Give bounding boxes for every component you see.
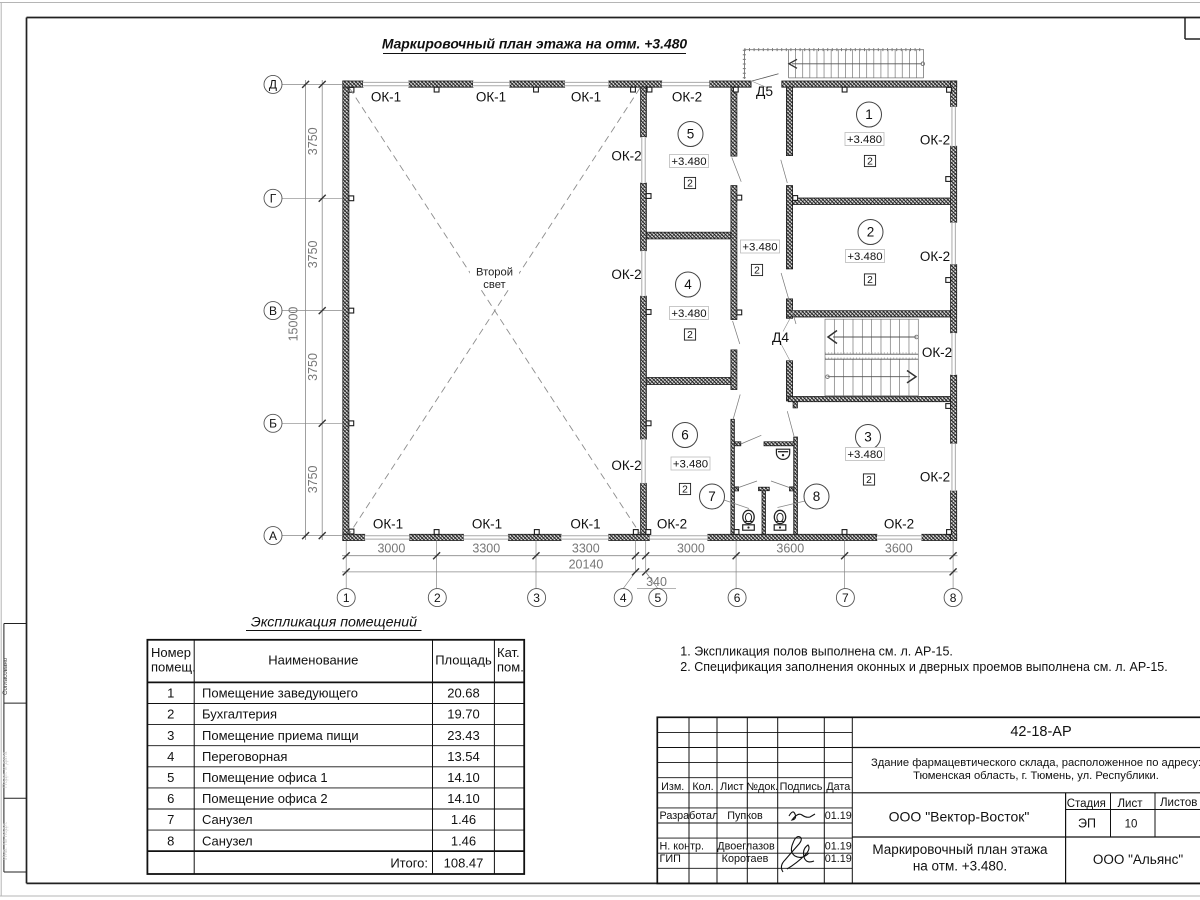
svg-text:Лист: Лист	[1118, 798, 1144, 810]
svg-text:5: 5	[654, 591, 661, 605]
svg-text:1: 1	[865, 107, 873, 122]
svg-text:3600: 3600	[885, 541, 913, 555]
svg-text:3: 3	[533, 591, 540, 605]
svg-text:20.68: 20.68	[447, 686, 480, 701]
svg-text:Г: Г	[270, 192, 277, 206]
svg-text:3750: 3750	[306, 240, 320, 268]
svg-text:14.10: 14.10	[447, 770, 480, 785]
svg-text:5: 5	[167, 770, 174, 785]
svg-text:Санузел: Санузел	[202, 833, 253, 848]
svg-text:ОК-1: ОК-1	[371, 90, 401, 105]
svg-text:Подпись: Подпись	[780, 781, 823, 793]
svg-text:2: 2	[434, 591, 441, 605]
svg-text:4: 4	[167, 749, 174, 764]
svg-text:Наименование: Наименование	[268, 653, 358, 668]
svg-text:13.54: 13.54	[447, 749, 480, 764]
svg-text:ОК-2: ОК-2	[611, 267, 641, 282]
svg-text:Тюменская область, г. Тюмень,: Тюменская область, г. Тюмень, ул. Респуб…	[913, 770, 1159, 782]
svg-text:+3.480: +3.480	[673, 459, 708, 471]
svg-text:ОК-2: ОК-2	[672, 90, 702, 105]
svg-text:В: В	[269, 304, 277, 318]
svg-text:Бухгалтерия: Бухгалтерия	[202, 707, 277, 722]
svg-text:ОК-1: ОК-1	[373, 517, 403, 532]
svg-text:3: 3	[864, 430, 872, 445]
svg-text:01.19: 01.19	[825, 810, 852, 822]
svg-text:пом.: пом.	[497, 660, 524, 675]
svg-text:1. Экспликация полов выполнена: 1. Экспликация полов выполнена см. л. АР…	[680, 645, 953, 659]
svg-text:3750: 3750	[306, 465, 320, 493]
svg-text:8: 8	[950, 591, 957, 605]
svg-text:ОК-2: ОК-2	[611, 458, 641, 473]
svg-text:Второй: Второй	[476, 267, 513, 279]
svg-text:Маркировочный план этажа: Маркировочный план этажа	[872, 842, 1048, 857]
svg-text:ОК-2: ОК-2	[920, 470, 950, 485]
svg-text:Пупков: Пупков	[727, 810, 763, 822]
svg-text:Санузел: Санузел	[202, 812, 253, 827]
svg-text:2: 2	[754, 266, 760, 277]
svg-text:ОК-2: ОК-2	[922, 345, 952, 360]
svg-text:2: 2	[867, 157, 873, 168]
svg-text:ГИП: ГИП	[660, 853, 681, 865]
svg-text:19.70: 19.70	[447, 707, 480, 722]
svg-text:ООО "Альянс": ООО "Альянс"	[1093, 852, 1183, 867]
svg-text:+3.480: +3.480	[742, 242, 777, 254]
svg-text:8: 8	[167, 833, 174, 848]
svg-text:6: 6	[681, 428, 689, 443]
svg-text:Д5: Д5	[756, 84, 773, 99]
svg-text:15000: 15000	[287, 307, 301, 342]
svg-text:20140: 20140	[569, 558, 604, 572]
svg-text:3300: 3300	[472, 541, 500, 555]
svg-text:1: 1	[343, 591, 350, 605]
svg-text:Маркировочный план этажа на от: Маркировочный план этажа на отм. +3.480	[382, 36, 688, 52]
svg-text:5: 5	[687, 127, 695, 142]
svg-text:ЭП: ЭП	[1078, 817, 1096, 831]
svg-text:2. Спецификация заполнения око: 2. Спецификация заполнения оконных и две…	[680, 660, 1167, 674]
svg-text:Кол.: Кол.	[692, 781, 713, 793]
svg-text:1.46: 1.46	[451, 833, 476, 848]
svg-text:Лист: Лист	[720, 781, 744, 793]
svg-text:Д4: Д4	[772, 330, 789, 345]
svg-text:+3.480: +3.480	[671, 156, 706, 168]
svg-text:14.10: 14.10	[447, 791, 480, 806]
svg-text:3750: 3750	[306, 127, 320, 155]
svg-text:3300: 3300	[572, 541, 600, 555]
svg-text:Помещение офиса 2: Помещение офиса 2	[202, 791, 328, 806]
svg-text:+3.480: +3.480	[847, 449, 882, 461]
svg-text:3: 3	[167, 728, 174, 743]
svg-text:Коротаев: Коротаев	[722, 853, 769, 865]
svg-text:Двоеглазов: Двоеглазов	[717, 840, 775, 852]
svg-text:4: 4	[620, 591, 627, 605]
svg-text:Переговорная: Переговорная	[202, 749, 287, 764]
svg-text:ОК-1: ОК-1	[571, 90, 601, 105]
svg-text:3000: 3000	[677, 541, 705, 555]
svg-text:01.19: 01.19	[825, 840, 852, 852]
svg-text:2: 2	[867, 225, 875, 240]
svg-text:Изм.: Изм.	[661, 781, 684, 793]
svg-text:ООО "Вектор-Восток": ООО "Вектор-Восток"	[889, 809, 1030, 825]
svg-text:2: 2	[687, 179, 693, 190]
svg-text:108.47: 108.47	[444, 856, 484, 871]
svg-text:ОК-1: ОК-1	[570, 517, 600, 532]
svg-text:+3.480: +3.480	[671, 308, 706, 320]
svg-text:6: 6	[167, 791, 174, 806]
svg-text:свет: свет	[483, 279, 505, 291]
svg-text:ОК-2: ОК-2	[920, 133, 950, 148]
svg-text:Номер: Номер	[151, 645, 191, 660]
svg-text:2: 2	[867, 275, 873, 286]
svg-text:3600: 3600	[776, 541, 804, 555]
svg-text:01.19: 01.19	[825, 853, 852, 865]
svg-text:ОК-2: ОК-2	[884, 517, 914, 532]
svg-text:1.46: 1.46	[451, 812, 476, 827]
svg-text:2: 2	[167, 707, 174, 722]
svg-text:Стадия: Стадия	[1067, 798, 1106, 810]
svg-text:7: 7	[167, 812, 174, 827]
svg-text:42-18-АР: 42-18-АР	[1010, 724, 1071, 740]
svg-text:Экспликация помещений: Экспликация помещений	[251, 615, 417, 631]
svg-text:Согласовано: Согласовано	[2, 657, 9, 695]
svg-text:Инв. № подл.: Инв. № подл.	[2, 821, 9, 860]
svg-text:3000: 3000	[377, 541, 405, 555]
svg-text:Листов: Листов	[1160, 797, 1197, 809]
svg-text:4: 4	[684, 277, 692, 292]
svg-text:2: 2	[866, 475, 872, 486]
svg-text:3750: 3750	[306, 353, 320, 381]
svg-text:Б: Б	[269, 417, 277, 431]
svg-text:Помещение приема пищи: Помещение приема пищи	[202, 728, 359, 743]
svg-text:Помещение заведующего: Помещение заведующего	[202, 686, 358, 701]
svg-text:Здание фармацевтического склад: Здание фармацевтического склада, располо…	[871, 757, 1200, 769]
svg-text:ОК-1: ОК-1	[472, 517, 502, 532]
svg-text:Разработал: Разработал	[660, 810, 719, 822]
svg-text:7: 7	[842, 591, 849, 605]
svg-text:7: 7	[708, 489, 716, 504]
svg-text:Кат.: Кат.	[497, 645, 520, 660]
svg-text:6: 6	[734, 591, 741, 605]
svg-text:1: 1	[167, 686, 174, 701]
svg-text:Итого:: Итого:	[390, 856, 428, 871]
svg-text:Подп. и дата: Подп. и дата	[2, 751, 9, 788]
svg-text:ОК-2: ОК-2	[657, 517, 687, 532]
svg-text:ОК-1: ОК-1	[476, 90, 506, 105]
svg-text:Н. контр.: Н. контр.	[660, 840, 705, 852]
svg-text:ОК-2: ОК-2	[611, 149, 641, 164]
svg-text:340: 340	[646, 575, 667, 589]
svg-text:10: 10	[1125, 819, 1138, 831]
svg-text:+3.480: +3.480	[847, 134, 882, 146]
svg-text:Дата: Дата	[826, 781, 850, 793]
svg-text:А: А	[269, 529, 277, 543]
svg-text:+3.480: +3.480	[847, 251, 882, 263]
svg-text:помещ.: помещ.	[151, 660, 196, 675]
svg-text:Помещение офиса 1: Помещение офиса 1	[202, 770, 328, 785]
svg-text:2: 2	[682, 485, 688, 496]
svg-text:на отм. +3.480.: на отм. +3.480.	[913, 859, 1007, 874]
svg-text:№док.: №док.	[746, 781, 778, 793]
svg-text:Д: Д	[269, 78, 277, 92]
svg-text:23.43: 23.43	[447, 728, 480, 743]
svg-text:8: 8	[813, 489, 821, 504]
svg-text:2: 2	[687, 330, 693, 341]
svg-text:ОК-2: ОК-2	[920, 249, 950, 264]
svg-text:Площадь: Площадь	[435, 653, 492, 668]
